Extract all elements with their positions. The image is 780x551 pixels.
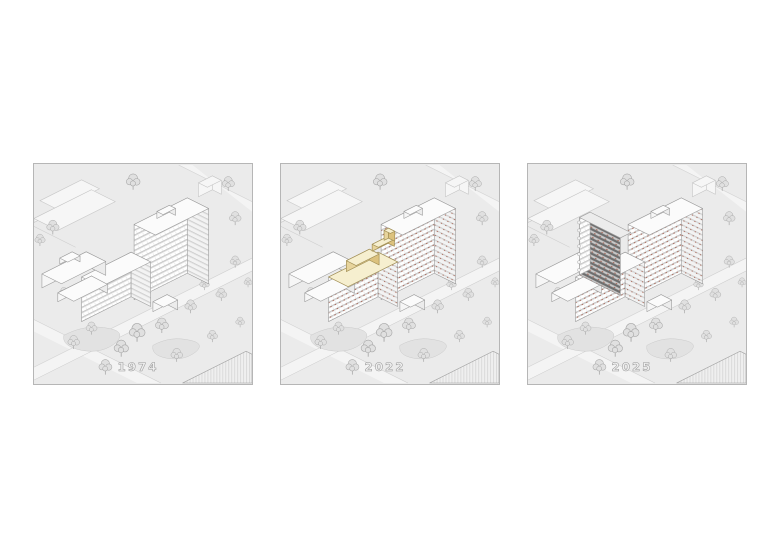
year-label: 2022 bbox=[365, 360, 406, 374]
panel-1974: 1974 bbox=[33, 163, 253, 385]
axonometric-drawing-2025: 2025 bbox=[528, 164, 746, 384]
axonometric-drawing-2022: 2022 bbox=[281, 164, 499, 384]
year-label: 2025 bbox=[612, 360, 653, 374]
diagram-canvas: 1974 bbox=[0, 0, 780, 551]
axonometric-drawing-1974: 1974 bbox=[34, 164, 252, 384]
year-label: 1974 bbox=[118, 360, 159, 374]
panel-2025: 2025 bbox=[527, 163, 747, 385]
panel-2022: 2022 bbox=[280, 163, 500, 385]
